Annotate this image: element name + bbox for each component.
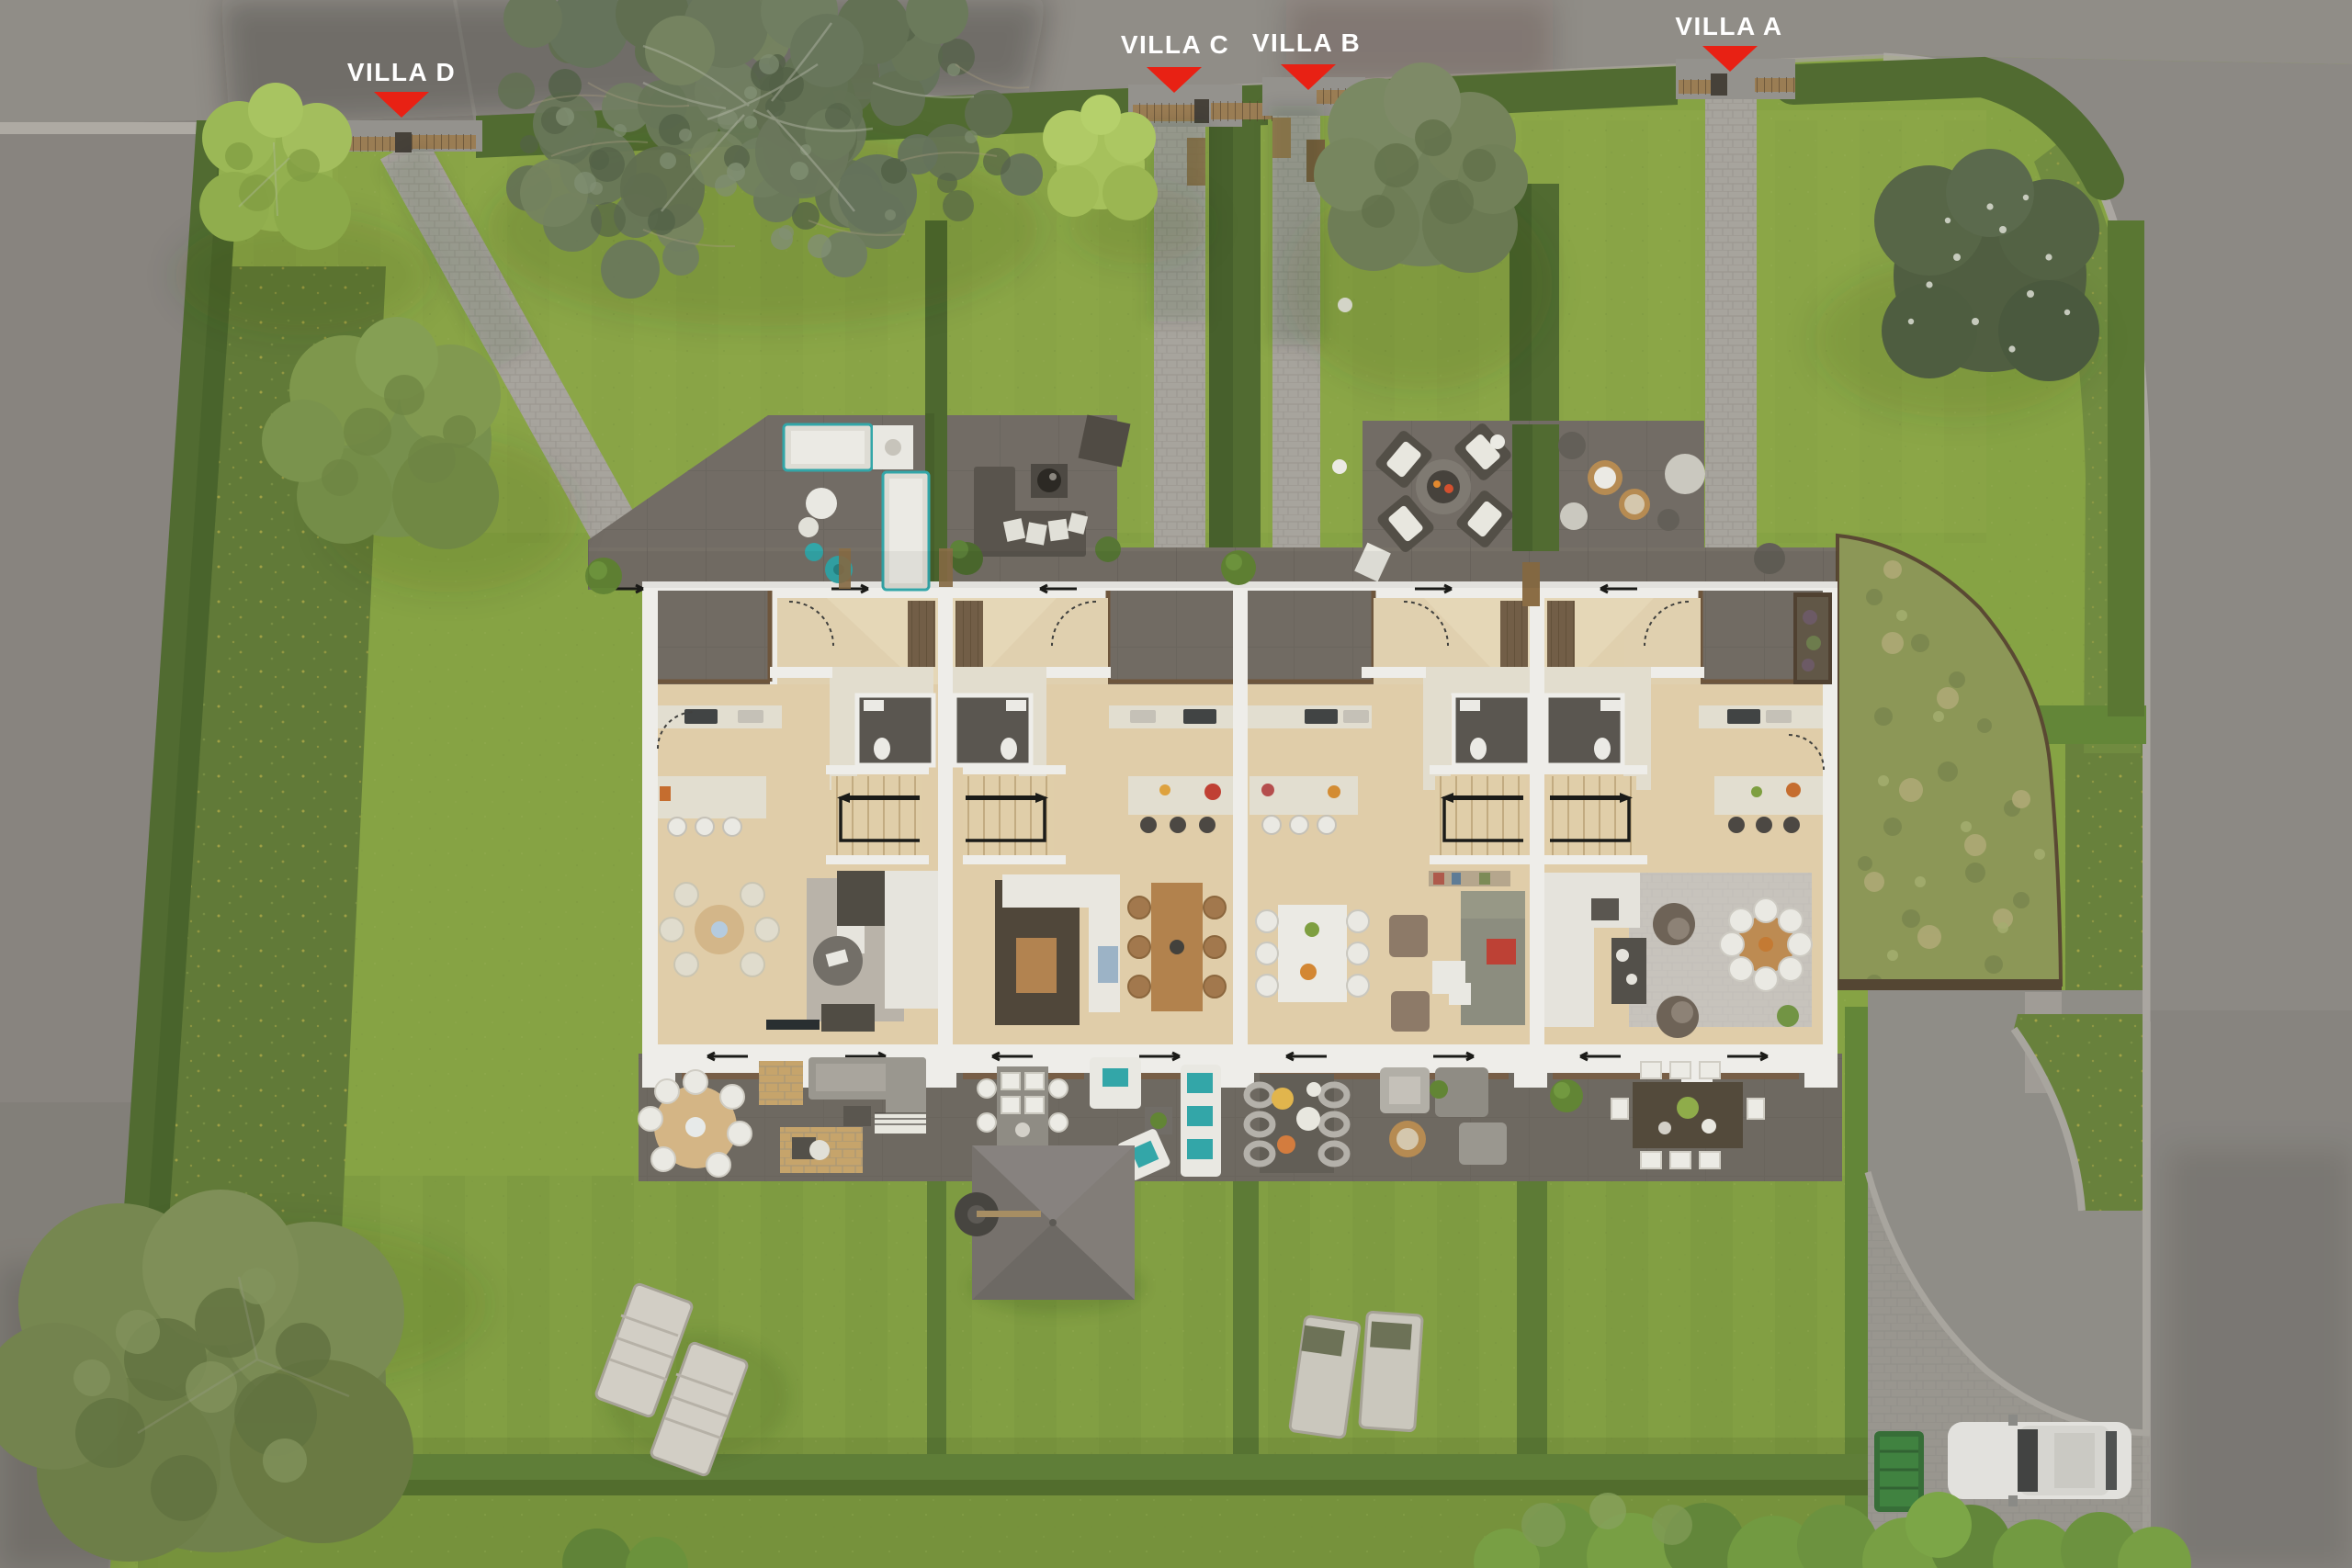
svg-text:VILLA D: VILLA D bbox=[347, 58, 456, 86]
svg-text:VILLA B: VILLA B bbox=[1252, 28, 1361, 57]
svg-text:VILLA A: VILLA A bbox=[1675, 12, 1782, 40]
svg-text:VILLA C: VILLA C bbox=[1121, 30, 1229, 59]
